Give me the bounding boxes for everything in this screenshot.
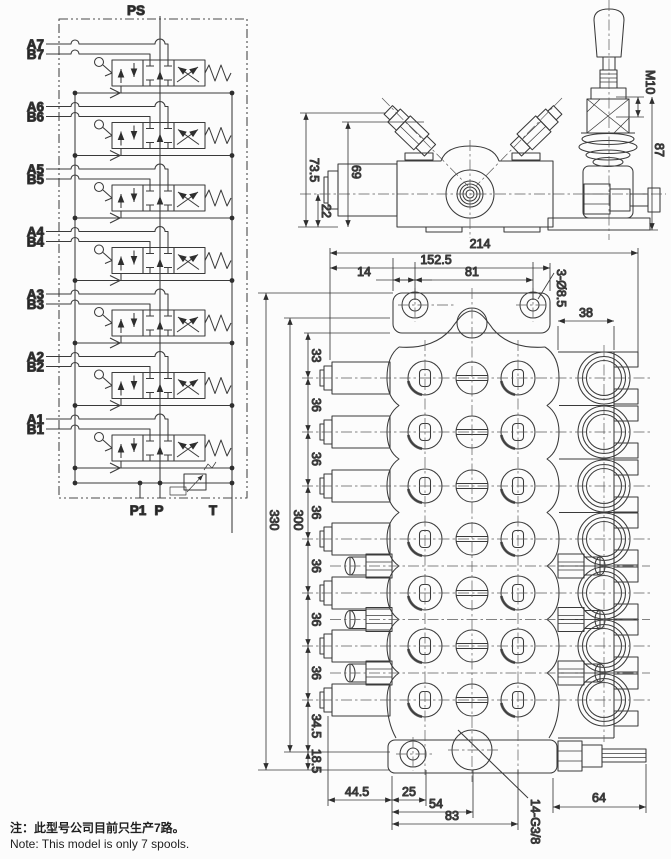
- dim-bottom-4: 83: [445, 809, 459, 823]
- dim-bottom-5: 64: [592, 791, 606, 805]
- dim-sec-pitch: 36: [309, 666, 323, 680]
- dim-hole-offset: 14: [357, 265, 371, 279]
- dim-bottom-3: 54: [429, 797, 443, 811]
- dim-sec-last: 34.5: [309, 714, 323, 738]
- valve-section-1: [46, 414, 234, 473]
- angled-fitting-left: [381, 102, 438, 158]
- technical-drawing: PS A7 B7 A6 B6 A5 B5 A4 B4 A3 B3 A2 B2 A…: [0, 0, 671, 859]
- valve-section-5: [46, 164, 234, 223]
- dim-bottom-margin: 18.5: [309, 749, 323, 773]
- port-label-p: P: [154, 503, 163, 518]
- dim-sec-pitch: 36: [309, 506, 323, 520]
- joystick-assembly: [548, 9, 650, 230]
- dim-inner-height: 300: [291, 510, 305, 531]
- port-label-ps: PS: [127, 3, 145, 18]
- port-label-b3: B3: [27, 297, 45, 312]
- side-body: [397, 146, 553, 227]
- dim-bottom-1: 44.5: [345, 785, 369, 799]
- side-right-fittings: [584, 184, 660, 214]
- valve-section-6: [46, 102, 234, 161]
- drawing-sheet: PS A7 B7 A6 B6 A5 B5 A4 B4 A3 B3 A2 B2 A…: [0, 0, 671, 859]
- note-english: Note: This model is only 7 spools.: [10, 837, 189, 851]
- spool-cap-blocks: [558, 352, 614, 738]
- valve-section-3: [46, 289, 234, 348]
- port-label-b5: B5: [27, 172, 45, 187]
- dim-side-port-height: 22: [319, 204, 333, 218]
- dim-overall-height: 330: [267, 510, 281, 531]
- valve-section-4: [46, 227, 234, 286]
- dim-sec-first: 33: [309, 349, 323, 363]
- dim-side-overall-height: 73.5: [307, 158, 321, 182]
- dim-side-body-height: 69: [349, 165, 363, 179]
- note-chinese: 注：此型号公司目前只生产7路。: [10, 820, 185, 835]
- port-label-b6: B6: [27, 110, 45, 125]
- dim-mount-holes: 3-Ø8.5: [554, 269, 568, 307]
- valve-section-7: [46, 39, 234, 98]
- dim-hole-spacing: 81: [465, 265, 479, 279]
- port-label-b7: B7: [27, 47, 44, 62]
- port-label-b4: B4: [27, 235, 45, 250]
- dim-bottom-2: 25: [402, 785, 416, 799]
- dim-lever-thread: M10: [643, 70, 657, 94]
- dim-sec-pitch: 36: [309, 559, 323, 573]
- dim-mount-width: 152.5: [420, 253, 451, 267]
- valve-section-2: [46, 352, 234, 411]
- dim-sec-pitch: 36: [309, 398, 323, 412]
- angled-fitting-right: [508, 102, 565, 158]
- dim-handle-height: 87: [652, 143, 666, 157]
- front-view: 214 152.5 14 81 3-Ø8.5 38 33 36 36 36 36…: [258, 237, 652, 844]
- body-left-edge: [387, 347, 399, 738]
- main-relief-fitting: [558, 741, 646, 771]
- dim-sec-pitch: 36: [309, 613, 323, 627]
- dim-port-thread: 14-G3/8: [528, 799, 542, 844]
- dim-total-width: 214: [470, 237, 491, 251]
- dim-sec-pitch: 36: [309, 452, 323, 466]
- port-label-b1: B1: [27, 422, 45, 437]
- port-label-b2: B2: [27, 360, 44, 375]
- port-label-p1: P1: [130, 503, 147, 518]
- hydraulic-schematic: PS A7 B7 A6 B6 A5 B5 A4 B4 A3 B3 A2 B2 A…: [27, 3, 247, 533]
- dim-end-width: 38: [579, 306, 593, 320]
- side-view: 73.5 69 22 M10 87: [298, 0, 666, 240]
- relief-valve-symbol: [170, 462, 216, 495]
- body-right-edge: [545, 347, 559, 738]
- port-label-t: T: [209, 503, 218, 518]
